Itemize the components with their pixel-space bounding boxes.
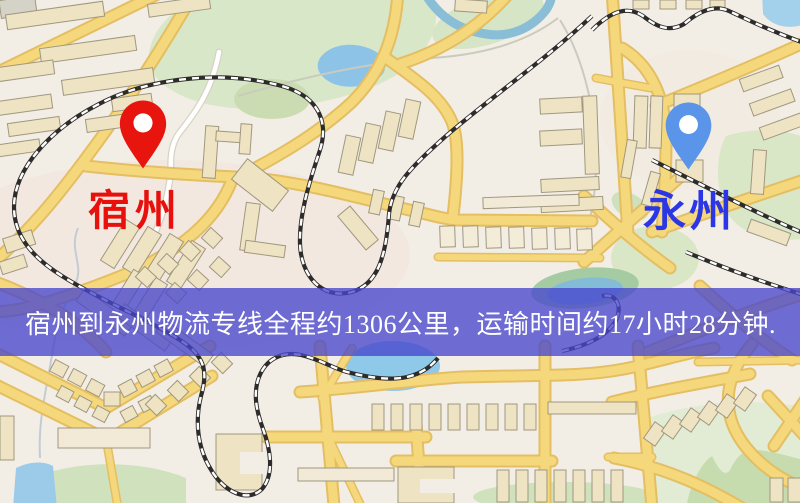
route-info-banner: 宿州到永州物流专线全程约1306公里，运输时间约17小时28分钟. [0, 288, 800, 356]
destination-marker-pin[interactable] [662, 101, 715, 171]
destination-place-label: 永州 [643, 177, 735, 239]
route-info-text: 宿州到永州物流专线全程约1306公里，运输时间约17小时28分钟. [0, 304, 776, 341]
map-canvas [0, 0, 800, 503]
map-pin-icon [662, 101, 715, 171]
origin-place-label: 宿州 [88, 177, 182, 238]
map-view[interactable]: 宿州到永州物流专线全程约1306公里，运输时间约17小时28分钟. 宿州 永州 [0, 0, 800, 503]
origin-marker-pin[interactable] [116, 99, 170, 170]
map-pin-icon [116, 99, 170, 170]
